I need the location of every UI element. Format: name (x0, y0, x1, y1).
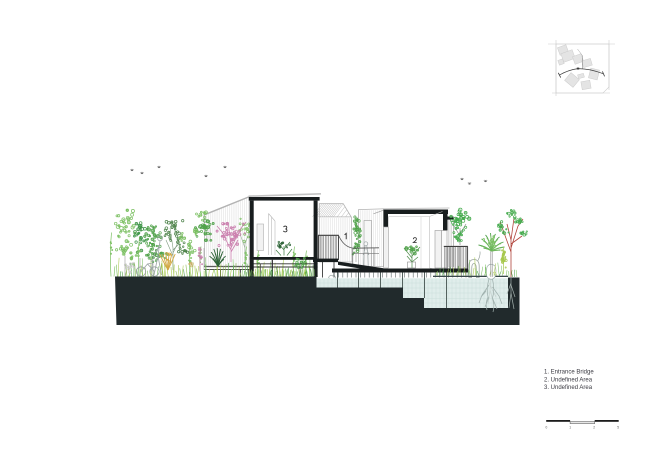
svg-text:1: 1 (569, 426, 571, 430)
svg-text:2. Undefined Area: 2. Undefined Area (544, 377, 593, 383)
svg-text:1. Entrance Bridge: 1. Entrance Bridge (544, 370, 594, 376)
svg-text:3. Undefined Area: 3. Undefined Area (544, 385, 593, 391)
svg-text:5: 5 (617, 426, 619, 430)
svg-text:2: 2 (593, 426, 595, 430)
svg-text:0: 0 (546, 426, 548, 430)
